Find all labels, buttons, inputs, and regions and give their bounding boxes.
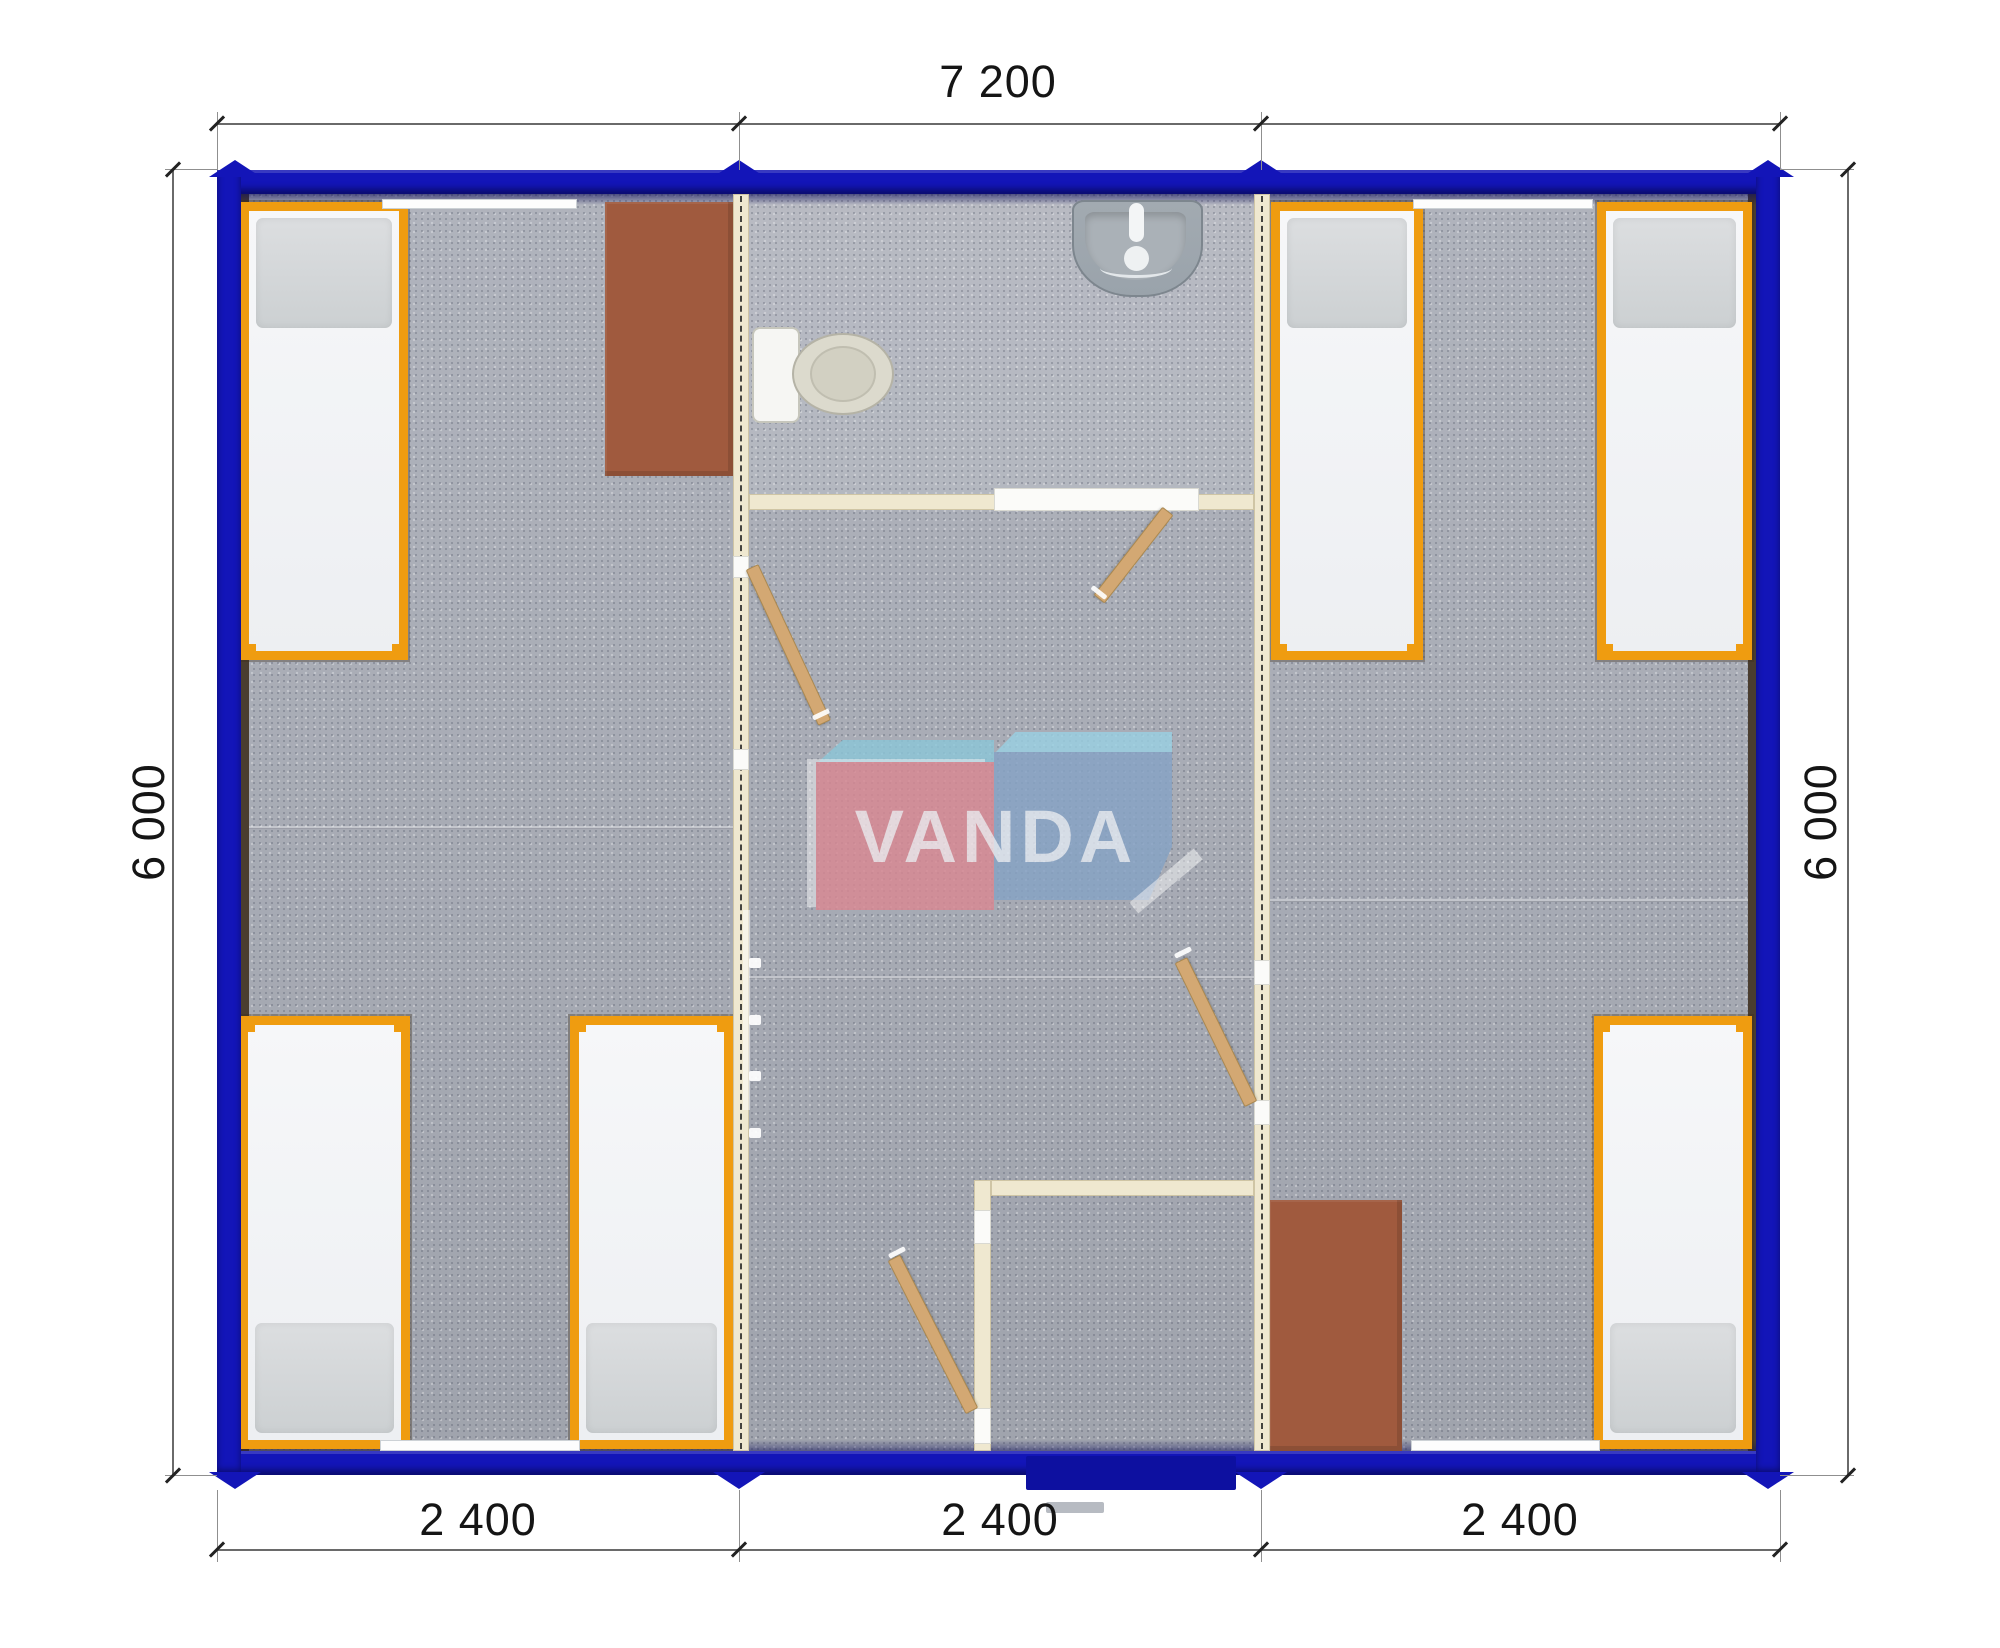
exterior-wall-right: [1756, 170, 1780, 1475]
exterior-wall-bottom: [217, 1451, 1780, 1475]
door-jamb: [1254, 1100, 1270, 1125]
bed-frame-tab: [573, 1019, 586, 1032]
joint-marker-bottom: [1235, 1472, 1287, 1489]
pillow: [1287, 218, 1407, 328]
vestibule-wall-horizontal: [991, 1180, 1254, 1196]
bed-frame-tab: [243, 644, 256, 657]
window: [1411, 1440, 1600, 1451]
bed: [1271, 202, 1423, 660]
extension-line: [1780, 169, 1854, 170]
bed: [1594, 1016, 1752, 1449]
interior-wall-left: [733, 194, 749, 1451]
hall-hook: [749, 958, 761, 968]
bed-frame-tab: [1600, 644, 1613, 657]
bed: [1597, 202, 1752, 660]
hall-hook: [749, 1128, 761, 1138]
door-jamb: [974, 1408, 991, 1444]
bed: [240, 202, 408, 660]
desk-bottom-right: [1269, 1200, 1402, 1451]
pillow: [256, 218, 392, 328]
floor-seam-hall: [749, 976, 1254, 978]
window: [1413, 199, 1593, 209]
hall-hook: [749, 1071, 761, 1081]
logo-text: VANDA: [812, 736, 1180, 914]
dimension-label-bottom-2: 2 400: [900, 1494, 1100, 1546]
bathroom-door-frame: [994, 488, 1199, 511]
floor-seam-left: [241, 826, 733, 828]
pillow: [1613, 218, 1736, 328]
dimension-line-right: [1847, 170, 1849, 1475]
extension-line: [1780, 1475, 1854, 1476]
bed-frame-tab: [392, 644, 405, 657]
bed-frame-tab: [1597, 1019, 1610, 1032]
toilet-seat: [810, 346, 876, 402]
exterior-wall-left: [217, 170, 241, 1475]
dimension-label-top: 7 200: [898, 56, 1098, 108]
exterior-wall-top: [217, 170, 1780, 194]
hall-hook: [749, 1015, 761, 1025]
floor-plan: VANDA: [0, 0, 2000, 1648]
door-jamb: [1254, 960, 1270, 985]
bed-frame-tab: [717, 1019, 730, 1032]
bed-frame-tab: [242, 1019, 255, 1032]
bed-frame-tab: [1736, 644, 1749, 657]
sink: [1072, 200, 1203, 297]
vanda-logo: VANDA: [812, 736, 1180, 914]
toilet: [744, 322, 899, 427]
bed: [239, 1016, 410, 1449]
bed-frame-tab: [1274, 644, 1287, 657]
floor-seam-right: [1270, 899, 1756, 901]
bed: [570, 1016, 733, 1449]
desk-top-left: [605, 202, 733, 476]
door-jamb: [974, 1210, 991, 1244]
window: [382, 199, 577, 209]
interior-wall-right: [1254, 194, 1270, 1451]
bed-frame-tab: [394, 1019, 407, 1032]
dimension-line-top: [217, 123, 1780, 125]
dimension-line-bottom: [217, 1549, 1780, 1551]
door-jamb: [733, 749, 749, 770]
dimension-label-left: 6 000: [123, 763, 175, 881]
bed-frame-tab: [1407, 644, 1420, 657]
dimension-label-bottom-3: 2 400: [1420, 1494, 1620, 1546]
pillow: [1610, 1323, 1736, 1433]
pillow: [586, 1323, 717, 1433]
sink-faucet: [1129, 203, 1144, 242]
bed-frame-tab: [1736, 1019, 1749, 1032]
entrance-door: [1026, 1456, 1236, 1490]
door-jamb: [733, 556, 749, 578]
pillow: [255, 1323, 394, 1433]
dimension-label-bottom-1: 2 400: [378, 1494, 578, 1546]
dimension-label-right: 6 000: [1795, 763, 1847, 881]
sink-drain-line: [1100, 258, 1172, 278]
joint-marker-bottom: [713, 1472, 765, 1489]
window: [380, 1440, 580, 1451]
